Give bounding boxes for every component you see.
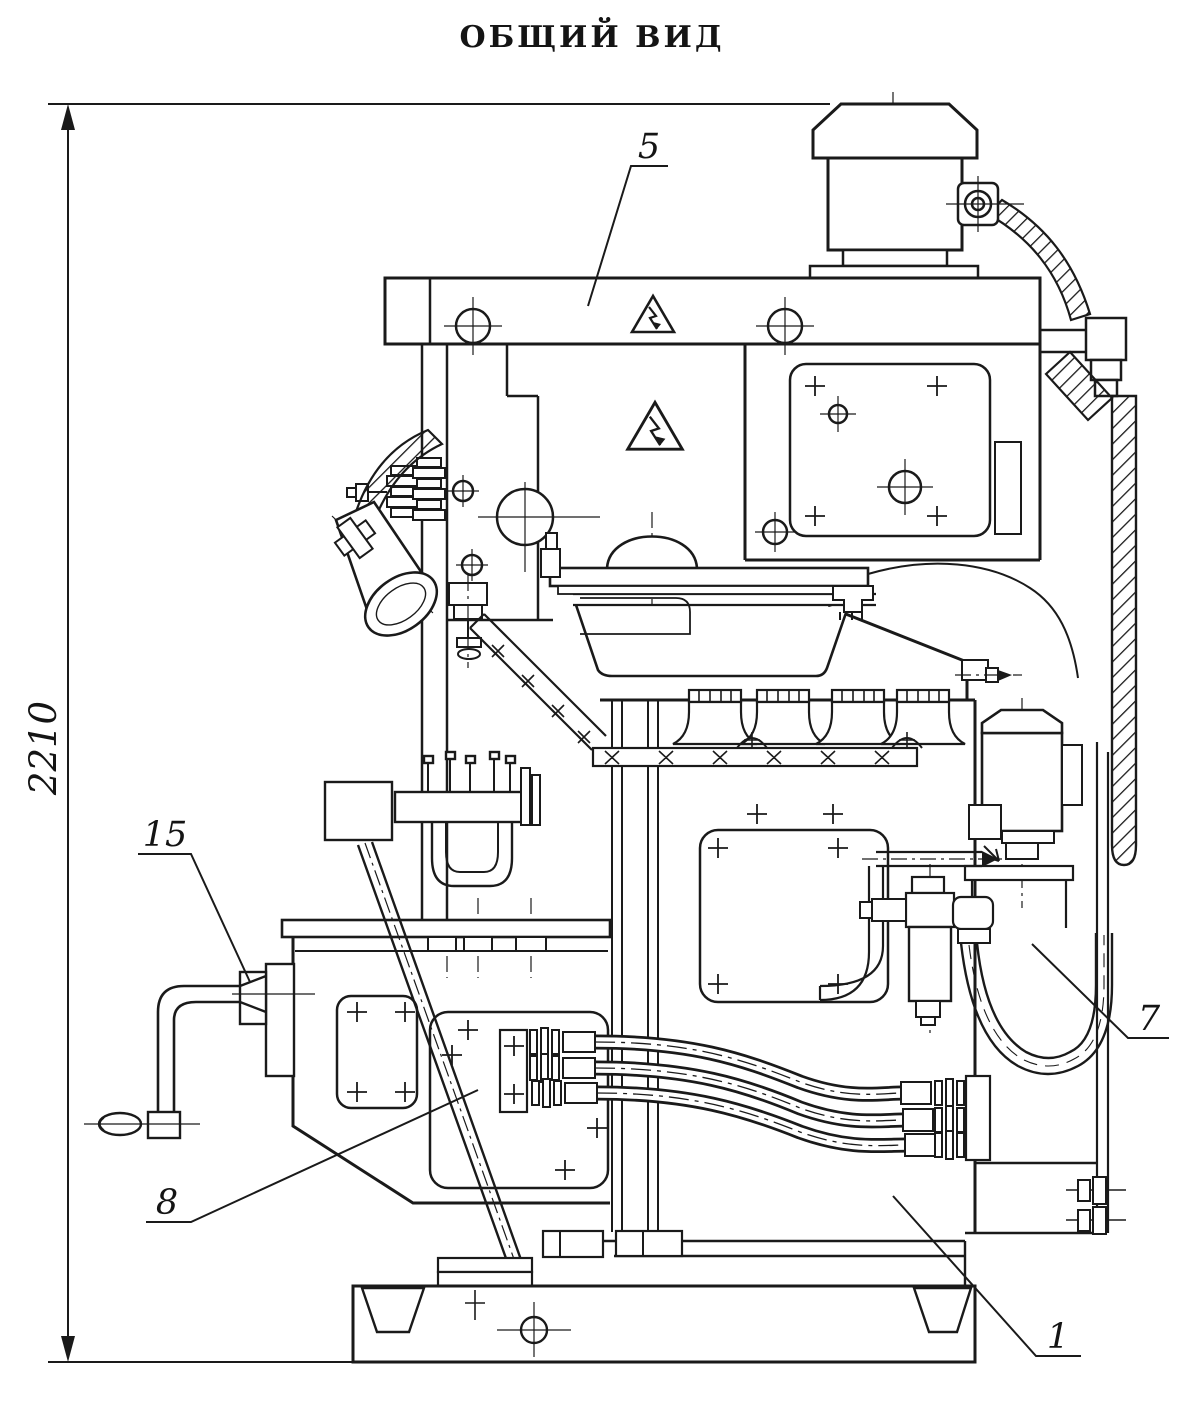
- callout-15-label: 15: [143, 815, 188, 855]
- machine-line-art: 2210: [0, 0, 1200, 1409]
- callout-1-label: 1: [1047, 1317, 1069, 1357]
- callout-5-label: 5: [638, 127, 660, 167]
- knee-top-bracket: [325, 752, 540, 886]
- callout-15-leader: [138, 854, 250, 982]
- callout-7-label: 7: [1138, 999, 1161, 1039]
- electrical-door-panel: [790, 364, 1021, 536]
- coolant-tank: [965, 1163, 1126, 1234]
- callout-8-label: 8: [156, 1183, 178, 1223]
- spindle-dome: [607, 537, 697, 569]
- high-voltage-warning-icon: [628, 402, 683, 449]
- dimension-value: 2210: [22, 701, 65, 796]
- work-table: [541, 512, 1078, 700]
- machine-head: [347, 278, 1040, 920]
- u-hose: [961, 933, 1112, 1074]
- table-t-slots: [673, 690, 965, 744]
- clamp-screw: [449, 575, 487, 668]
- drawing-sheet: ОБЩИЙ ВИД 2210: [0, 0, 1200, 1409]
- machine-base: [353, 1231, 975, 1362]
